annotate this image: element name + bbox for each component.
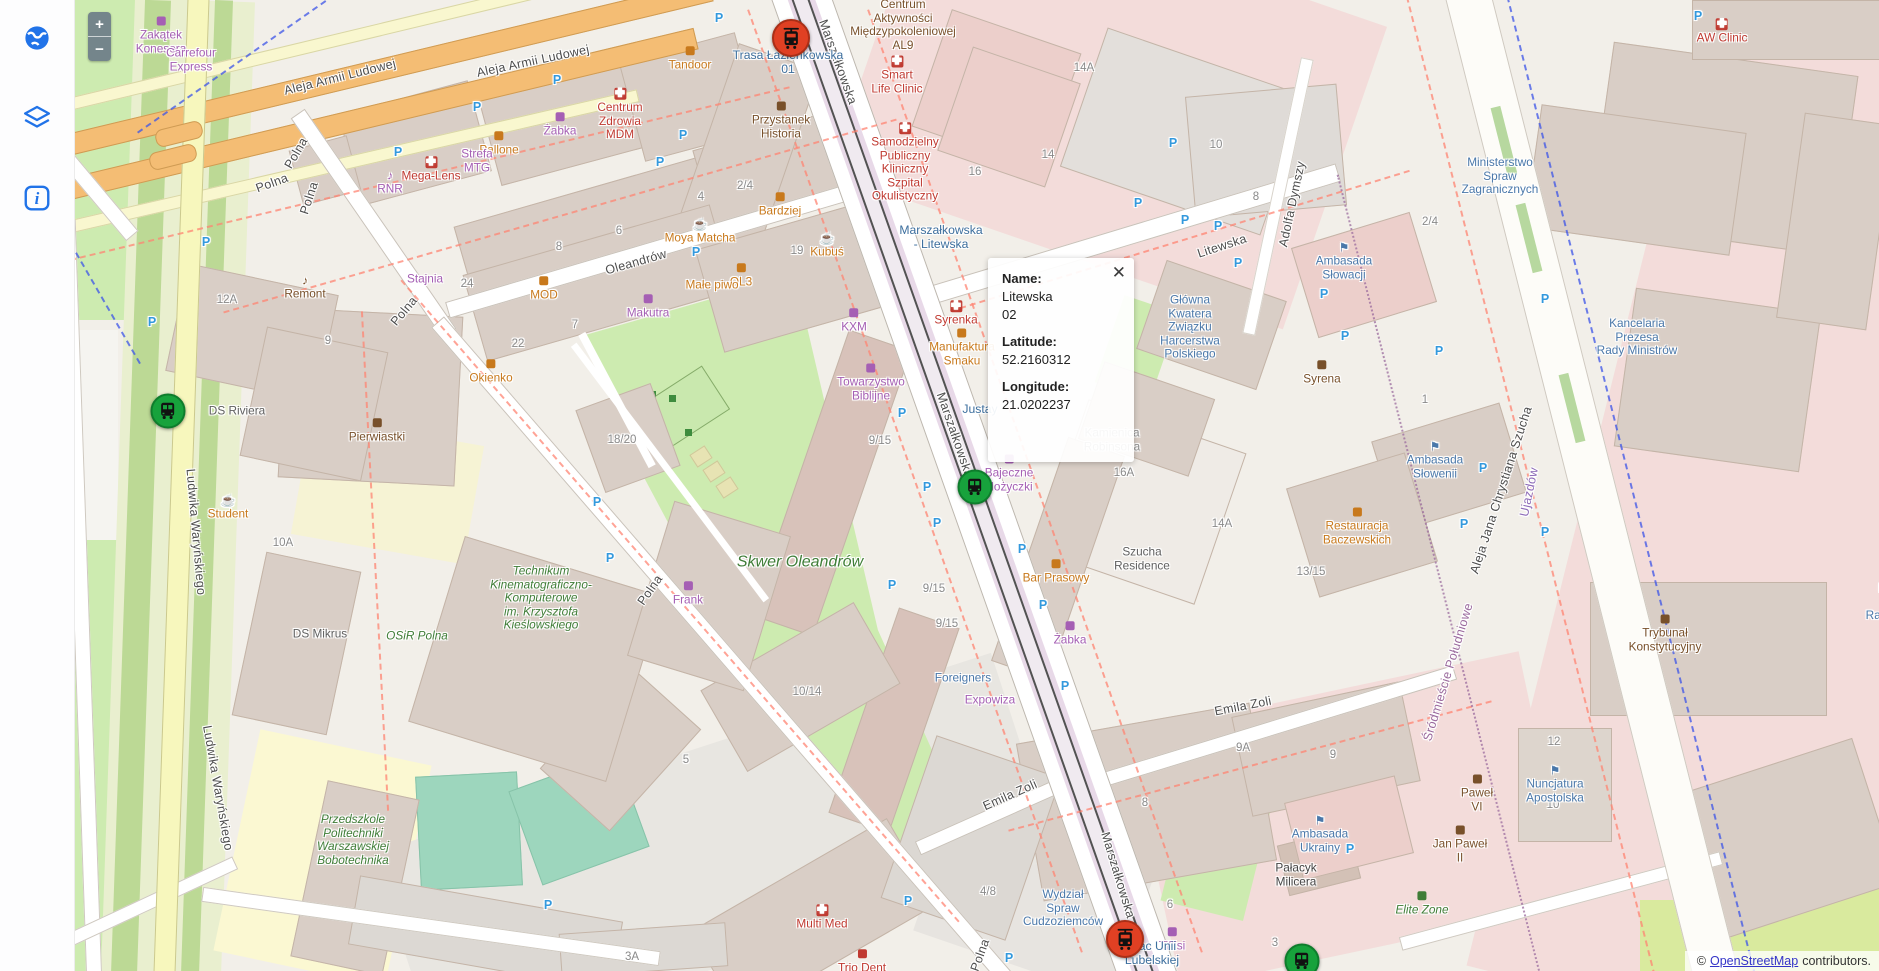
poi-label: ☕Moya Matcha bbox=[665, 219, 736, 245]
tooth-icon bbox=[838, 949, 886, 960]
house-number: 10 bbox=[1210, 139, 1223, 151]
masks-icon bbox=[1303, 360, 1340, 371]
awning-icon bbox=[1159, 927, 1185, 938]
parking-icon: P bbox=[1479, 461, 1487, 475]
parking-icon: P bbox=[394, 145, 402, 159]
house-number: 19 bbox=[791, 245, 804, 257]
cross-icon: ✚ bbox=[401, 155, 460, 168]
poi-label: Bar Prasowy bbox=[1023, 559, 1090, 585]
poi-label: MOD bbox=[530, 276, 558, 302]
poi-label: PałacykMilicera bbox=[1275, 862, 1316, 889]
house-number: 24 bbox=[461, 278, 474, 290]
map-popup: ✕ Name: Litewska 02 Latitude: 52.2160312… bbox=[988, 258, 1134, 462]
house-number: 12 bbox=[1548, 736, 1561, 748]
poi-label: ⚑AmbasadaUkrainy bbox=[1292, 816, 1348, 855]
attribution-bar: © OpenStreetMap contributors. bbox=[1685, 951, 1879, 971]
poi-label: DS Mikrus bbox=[293, 627, 347, 641]
parking-icon: P bbox=[1541, 525, 1549, 539]
house-number: 4 bbox=[698, 191, 704, 203]
appliance-icon bbox=[627, 294, 670, 305]
poi-label: WydziałSprawCudzoziemców bbox=[1023, 888, 1103, 929]
popup-name-value: Litewska bbox=[1002, 288, 1124, 306]
poi-label: Foreigners bbox=[935, 671, 991, 685]
cutlery-icon bbox=[530, 276, 558, 287]
poi-label: GłównaKwateraZwiązkuHarcerstwaPolskiego bbox=[1160, 293, 1220, 361]
left-toolbar: i bbox=[0, 0, 75, 971]
house-number: 16 bbox=[969, 166, 982, 178]
poi-label: SzuchaResidence bbox=[1114, 546, 1170, 573]
globe-button[interactable] bbox=[15, 18, 59, 62]
poi-label: Pierwiastki bbox=[349, 418, 405, 444]
cross-icon: ✚ bbox=[597, 87, 642, 100]
poi-label: CarrefourExpress bbox=[166, 47, 216, 74]
parking-icon: P bbox=[473, 100, 481, 114]
poi-label: ManufakturaSmaku bbox=[929, 329, 995, 368]
house-number: 3 bbox=[1272, 937, 1278, 949]
parking-icon: P bbox=[888, 578, 896, 592]
poi-label: ✚SmartLife Clinic bbox=[871, 55, 922, 96]
poi-label: Stajnia bbox=[407, 272, 443, 286]
parking-icon: P bbox=[898, 406, 906, 420]
cup-icon: ☕ bbox=[665, 219, 736, 230]
monument-icon bbox=[1461, 775, 1493, 786]
house-number: 6 bbox=[1167, 899, 1173, 911]
poi-label: TechnikumKinematograficzno-Komputeroweim… bbox=[490, 564, 592, 632]
poi-label: Żabka bbox=[544, 112, 577, 138]
parking-icon: P bbox=[679, 128, 687, 142]
parking-icon: P bbox=[1169, 136, 1177, 150]
poi-label: ☕Student bbox=[208, 495, 249, 521]
house-number: 9 bbox=[325, 335, 331, 347]
parking-icon: P bbox=[606, 551, 614, 565]
poi-label: Tandoor bbox=[669, 46, 712, 72]
parking-icon: P bbox=[202, 235, 210, 249]
poi-label: RestauracjaBaczewskich bbox=[1323, 508, 1391, 547]
house-number: 6 bbox=[616, 225, 622, 237]
parking-icon: P bbox=[692, 245, 700, 259]
house-number: 22 bbox=[512, 338, 525, 350]
poi-label: PawełVI bbox=[1461, 775, 1493, 814]
poi-label: ♪RNR bbox=[377, 170, 403, 196]
poi-label: ✚Multi Med bbox=[796, 903, 847, 931]
house-number: 10/14 bbox=[793, 686, 822, 698]
map-canvas[interactable]: Aleja Armii LudowejAleja Armii LudowejPo… bbox=[0, 0, 1879, 971]
poi-label: Bardziej bbox=[759, 192, 802, 218]
flag-icon: ⚑ bbox=[1292, 816, 1348, 827]
poi-label: Skwer Oleandrów bbox=[737, 555, 863, 569]
poi-label: Żabka bbox=[1054, 621, 1087, 647]
flag-icon: ⚑ bbox=[1407, 442, 1463, 453]
poi-label: ⚑AmbasadaSłowacji bbox=[1316, 243, 1372, 282]
cocktail-icon bbox=[730, 263, 752, 274]
popup-latitude-label: Latitude: bbox=[1002, 333, 1124, 351]
parking-icon: P bbox=[904, 894, 912, 908]
parking-icon: P bbox=[1341, 329, 1349, 343]
parking-icon: P bbox=[1134, 196, 1142, 210]
poi-label: ✚Mega-Lens bbox=[401, 155, 460, 183]
parking-icon: P bbox=[1541, 292, 1549, 306]
park-icon bbox=[669, 395, 676, 402]
cross-icon: ✚ bbox=[934, 299, 977, 312]
bus-marker[interactable] bbox=[958, 470, 993, 505]
sports-field bbox=[415, 771, 523, 890]
cutlery-icon bbox=[1323, 508, 1391, 519]
monument-icon bbox=[1433, 826, 1487, 837]
parking-icon: P bbox=[593, 495, 601, 509]
music-icon: ♪ bbox=[284, 275, 325, 286]
poi-label: MinisterstwoSprawZagranicznych bbox=[1462, 156, 1539, 197]
cake-icon bbox=[673, 581, 703, 592]
parking-icon: P bbox=[1346, 842, 1354, 856]
cup-icon: ☕ bbox=[810, 233, 843, 244]
house-number: 18/20 bbox=[608, 434, 637, 446]
parking-icon: P bbox=[715, 11, 723, 25]
cross-icon: ✚ bbox=[871, 121, 939, 134]
popup-name-value-2: 02 bbox=[1002, 306, 1124, 324]
parking-icon: P bbox=[553, 73, 561, 87]
poi-label: ⚑NuncjaturaApostolska bbox=[1526, 766, 1584, 805]
poi-label: Elite Zone bbox=[1395, 891, 1448, 917]
poi-label: KancelariaPrezesaRady Ministrów bbox=[1866, 582, 1879, 623]
house-number: 10A bbox=[273, 537, 293, 549]
parking-icon: P bbox=[923, 480, 931, 494]
poi-label: PrzedszkolePolitechnikiWarszawskiejBobot… bbox=[317, 813, 389, 867]
basket-icon bbox=[1054, 621, 1087, 632]
info-icon: i bbox=[22, 183, 52, 218]
cross-icon: ✚ bbox=[871, 55, 922, 68]
house-number: 4/8 bbox=[980, 886, 996, 898]
poi-label: ♪Remont bbox=[284, 275, 325, 301]
house-number: 13/15 bbox=[1297, 566, 1326, 578]
cocktail-icon bbox=[759, 192, 802, 203]
poi-label: Trio Dent bbox=[838, 949, 886, 971]
zoom-control: + − bbox=[88, 12, 111, 61]
zoom-out-button[interactable]: − bbox=[88, 37, 111, 61]
poi-label: CentrumAktywnościMiędzypokoleniowejAL9 bbox=[850, 0, 956, 52]
poi-label: TrybunałKonstytucyjny bbox=[1629, 615, 1702, 654]
furniture-icon bbox=[349, 418, 405, 429]
parking-icon: P bbox=[1005, 951, 1013, 965]
poi-label: OSiR Polna bbox=[386, 629, 448, 643]
scales-icon bbox=[1629, 615, 1702, 626]
house-number: 14 bbox=[1042, 149, 1055, 161]
house-number: 1 bbox=[1422, 394, 1428, 406]
parking-icon: P bbox=[1214, 219, 1222, 233]
poi-label: StrefaMTG bbox=[461, 148, 492, 175]
burger-icon bbox=[1023, 559, 1090, 570]
poi-label: Jan PawełII bbox=[1433, 826, 1487, 865]
parking-icon: P bbox=[1018, 542, 1026, 556]
street-label: Polna bbox=[254, 171, 290, 196]
poi-label: Frank bbox=[673, 581, 703, 607]
house-number: 3A bbox=[625, 951, 639, 963]
runner-icon bbox=[1395, 891, 1448, 902]
layers-button[interactable] bbox=[15, 98, 59, 142]
parking-icon: P bbox=[1039, 598, 1047, 612]
building bbox=[232, 552, 362, 736]
poi-label: DS Riviera bbox=[209, 404, 265, 418]
parking-icon: P bbox=[1694, 9, 1702, 23]
attribution-suffix: contributors. bbox=[1802, 954, 1871, 968]
basket-icon bbox=[544, 112, 577, 123]
wine-icon bbox=[136, 17, 187, 28]
tshirt-icon bbox=[841, 308, 867, 319]
bus-marker[interactable] bbox=[151, 394, 186, 429]
cross-icon: ✚ bbox=[796, 903, 847, 916]
parking-icon: P bbox=[1435, 344, 1443, 358]
house-number: 7 bbox=[572, 319, 578, 331]
parking-icon: P bbox=[544, 898, 552, 912]
tram-marker[interactable] bbox=[1106, 920, 1144, 958]
parking-icon: P bbox=[1061, 679, 1069, 693]
popup-name-label: Name: bbox=[1002, 270, 1124, 288]
parking-icon: P bbox=[656, 155, 664, 169]
popup-close-icon[interactable]: ✕ bbox=[1112, 264, 1126, 281]
svg-text:i: i bbox=[35, 189, 40, 208]
cross-icon: ✚ bbox=[1697, 17, 1748, 30]
house-number: 9 bbox=[1330, 749, 1336, 761]
icecream-icon bbox=[479, 131, 518, 142]
house-number: 9/15 bbox=[936, 618, 958, 630]
tram-marker[interactable] bbox=[772, 19, 810, 57]
info-button[interactable]: i bbox=[15, 178, 59, 222]
house-number: 9A bbox=[1236, 742, 1250, 754]
house-number: 2/4 bbox=[1422, 216, 1438, 228]
house-number: 14A bbox=[1074, 62, 1094, 74]
house-number: 5 bbox=[683, 754, 689, 766]
poi-label: TowarzystwoBiblijne bbox=[837, 364, 905, 403]
house-number: 16A bbox=[1114, 467, 1134, 479]
attribution-copyright: © bbox=[1697, 954, 1706, 968]
house-number: 14A bbox=[1212, 518, 1232, 530]
poi-label: ✚CentrumZdrowiaMDM bbox=[597, 87, 642, 142]
poi-label: ✚Syrenka bbox=[934, 299, 977, 327]
poi-label: Makutra bbox=[627, 294, 670, 320]
house-number: 8 bbox=[1142, 797, 1148, 809]
parking-icon: P bbox=[148, 315, 156, 329]
poi-label: Expowiza bbox=[965, 693, 1016, 707]
poi-label: Okienko bbox=[469, 359, 512, 385]
popup-longitude-value: 21.0202237 bbox=[1002, 396, 1124, 414]
zoom-in-button[interactable]: + bbox=[88, 12, 111, 37]
park-icon bbox=[685, 429, 692, 436]
house-number: 12A bbox=[217, 294, 237, 306]
poi-label: PrzystanekHistoria bbox=[752, 102, 810, 141]
cutlery-icon bbox=[669, 46, 712, 57]
popup-longitude-label: Longitude: bbox=[1002, 378, 1124, 396]
parking-icon: P bbox=[1181, 213, 1189, 227]
burger-icon bbox=[929, 329, 995, 340]
music-icon: ♪ bbox=[377, 170, 403, 181]
openstreetmap-link[interactable]: OpenStreetMap bbox=[1710, 954, 1798, 968]
parking-icon: P bbox=[1320, 287, 1328, 301]
bus-marker[interactable] bbox=[1285, 944, 1320, 971]
house-number: 8 bbox=[1253, 191, 1259, 203]
parking-icon: P bbox=[933, 516, 941, 530]
poi-label: Małe piwo bbox=[685, 278, 738, 292]
flag-icon: ⚑ bbox=[1526, 766, 1584, 777]
poi-label: Syrena bbox=[1303, 360, 1340, 386]
popup-latitude-value: 52.2160312 bbox=[1002, 351, 1124, 369]
globe-icon bbox=[22, 23, 52, 58]
book-icon bbox=[837, 364, 905, 375]
house-number: 8 bbox=[556, 241, 562, 253]
poi-label: KXM bbox=[841, 308, 867, 334]
poi-label: ✚SamodzielnyPublicznyKlinicznySzpitalOku… bbox=[871, 121, 939, 203]
parking-icon: P bbox=[1234, 256, 1242, 270]
flag-icon: ⚑ bbox=[1316, 243, 1372, 254]
burger-icon bbox=[469, 359, 512, 370]
house-number: 9/15 bbox=[869, 435, 891, 447]
house-number: 9/15 bbox=[923, 583, 945, 595]
poi-label: KancelariaPrezesaRady Ministrów bbox=[1597, 317, 1678, 358]
poi-label: ☕Kubuś bbox=[810, 233, 843, 259]
layers-icon bbox=[21, 103, 53, 138]
poi-label: ✚AW Clinic bbox=[1697, 17, 1748, 45]
poi-label: ⚑AmbasadaSłowenii bbox=[1407, 442, 1463, 481]
museum-icon bbox=[752, 102, 810, 113]
parking-icon: P bbox=[1460, 517, 1468, 531]
transit-stop-label: Marszałkowska- Litewska bbox=[899, 223, 982, 251]
house-number: 2/4 bbox=[737, 180, 753, 192]
cup-icon: ☕ bbox=[208, 495, 249, 506]
